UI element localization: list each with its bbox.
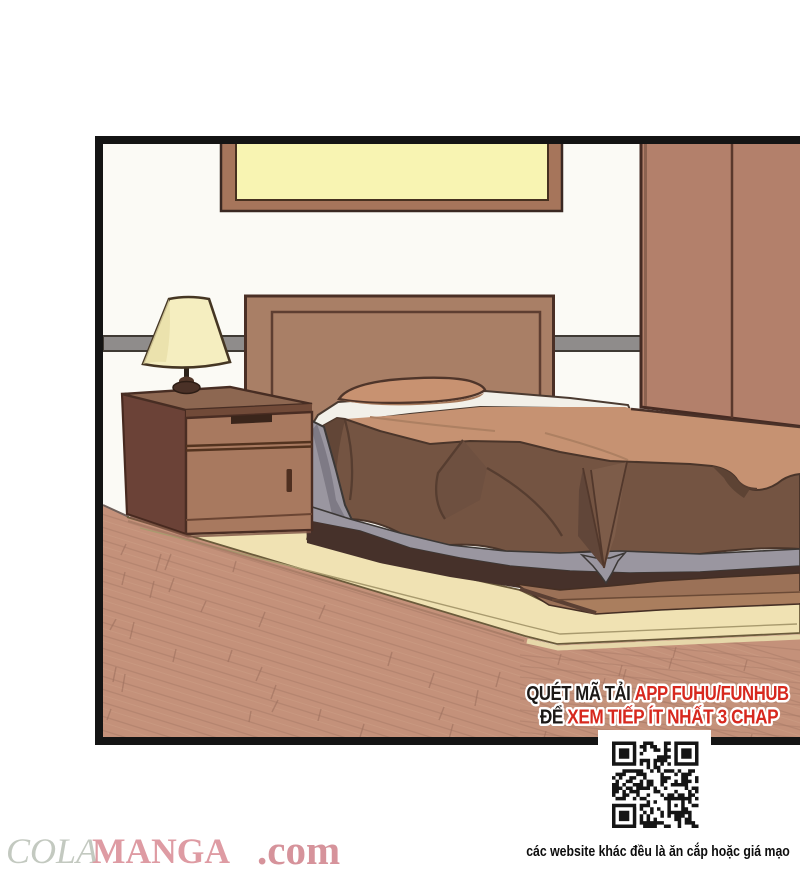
svg-text:ĐỂ XEM TIẾP ÍT NHẤT 3 CHAP: ĐỂ XEM TIẾP ÍT NHẤT 3 CHAP bbox=[540, 705, 778, 729]
svg-text:.com: .com bbox=[257, 827, 340, 871]
svg-text:COLA: COLA bbox=[6, 831, 99, 871]
svg-text:QUÉT MÃ TẢI APP FUHU/FUNHUB: QUÉT MÃ TẢI APP FUHU/FUNHUB bbox=[526, 681, 788, 704]
svg-text:các website khác đều là ăn cắp: các website khác đều là ăn cắp hoặc giá … bbox=[526, 841, 790, 860]
svg-text:MANGA: MANGA bbox=[92, 831, 230, 871]
